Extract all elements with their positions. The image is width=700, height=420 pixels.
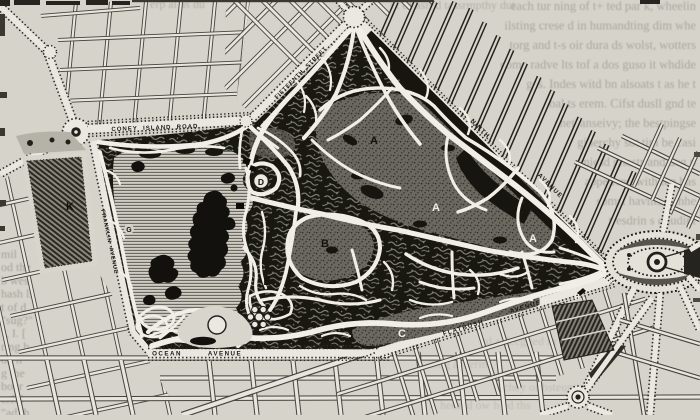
svg-text:tresdrin s ddudint: tresdrin s ddudint <box>609 214 697 228</box>
svg-text:B: B <box>321 238 329 250</box>
svg-text:C: C <box>398 328 406 340</box>
svg-text:"ad th: "ad th <box>1 405 30 415</box>
svg-text:D: D <box>258 177 264 187</box>
svg-text:come radve lts tof a dos guso: come radve lts tof a dos guso it whdide <box>500 58 696 72</box>
svg-text:G: G <box>126 227 132 234</box>
svg-text:OCEAN: OCEAN <box>152 351 182 358</box>
svg-text:K: K <box>66 201 74 213</box>
svg-text:mil: mil <box>1 247 18 261</box>
svg-text:A: A <box>370 135 378 147</box>
svg-text:H: H <box>574 294 579 301</box>
svg-text:A: A <box>432 202 440 214</box>
svg-text:A: A <box>529 233 537 245</box>
svg-text:F: F <box>240 302 245 312</box>
svg-text:bal ts erem. Cifst dusll gn: bal ts erem. Cifst dusll gnd te <box>549 97 696 111</box>
svg-text:E: E <box>263 276 270 288</box>
svg-text:torg and t-s oir dura ds wolst: torg and t-s oir dura ds wolst, wotters <box>509 38 696 52</box>
svg-text:ges. Indes witd bn alsoats: ges. Indes witd bn alsoats t as he t <box>526 77 696 91</box>
svg-text:each tur ning of t+ ted par k,: each tur ning of t+ ted par k, wheelin <box>511 0 697 13</box>
svg-text:ilsting crese d in humandting: ilsting crese d in humandting dim whe <box>504 19 696 33</box>
svg-text:AVENUE: AVENUE <box>208 351 242 358</box>
